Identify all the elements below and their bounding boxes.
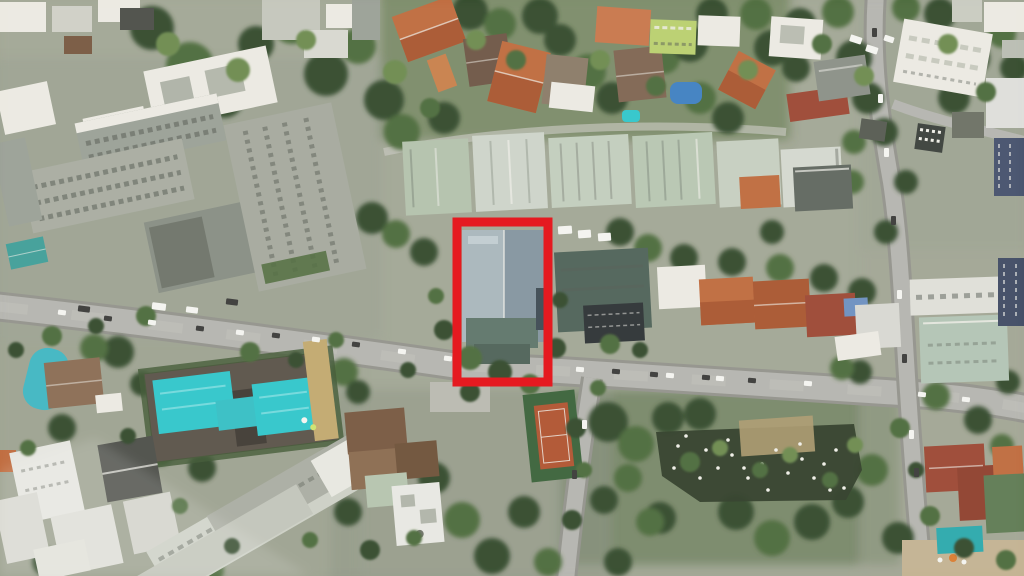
sun-glare	[0, 0, 1024, 576]
aerial-photo	[0, 0, 1024, 576]
